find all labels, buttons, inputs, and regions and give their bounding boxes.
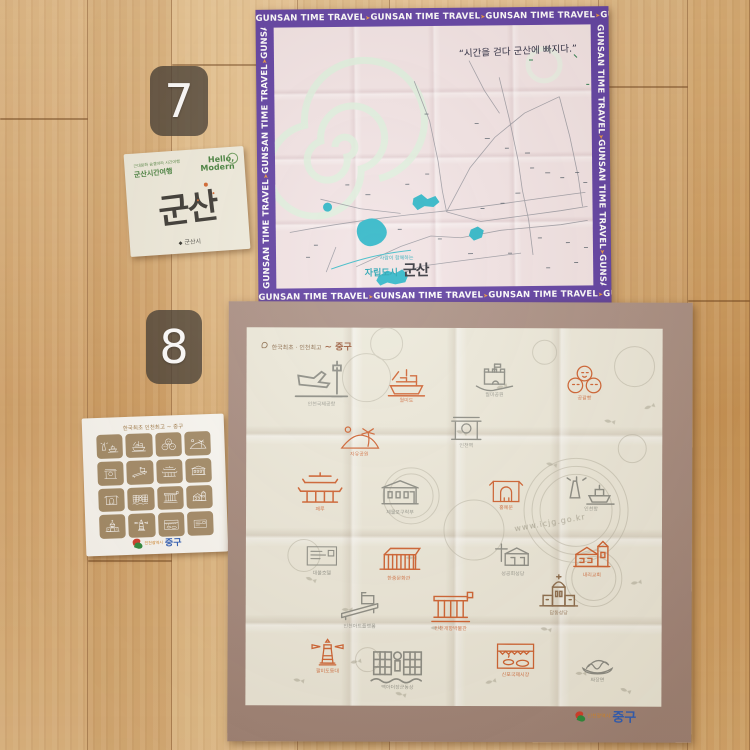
plane-separator-icon: ➤: [263, 174, 270, 179]
landmark-lighthouse: 팔미도등대: [305, 637, 349, 674]
statue-icon: [367, 642, 427, 685]
junggu-emblem-icon: [132, 538, 142, 548]
ink-dot: [212, 192, 214, 194]
church-icon: [568, 538, 616, 572]
city-calligraphy: 군산: [403, 261, 429, 279]
border-text: GUNSAN TIME TRAVEL: [596, 139, 607, 249]
border-text: GUNSAN TIME TRAVEL: [370, 12, 480, 23]
junggu-emblem-icon: [575, 711, 585, 721]
fish-silhouette-icon: [644, 403, 656, 411]
header-small-text: 한국최초 · 인천최고: [272, 342, 322, 351]
number-badge-8: 8: [146, 310, 202, 384]
landmark-gate: 인천역: [444, 412, 488, 449]
junggu-logo: 인천광역시 중구: [575, 706, 636, 725]
border-text: GUNSAN TIME TRAVEL: [600, 9, 608, 20]
border-text: GUNSAN TIME TRAVEL: [259, 28, 270, 59]
gate-icon: [444, 412, 488, 443]
landmark-label: 한중문화관: [374, 577, 424, 582]
modern-icon: [374, 540, 424, 576]
border-text: GUNSAN TIME TRAVEL: [485, 10, 595, 21]
landmark-columns: 인천개항박물관: [426, 590, 476, 632]
landmark-cathedral: 답동성당: [534, 574, 584, 616]
landmark-ship: 월미도: [382, 364, 430, 404]
landmark-hill: 자유공원: [338, 422, 380, 458]
plank-joint: [0, 118, 88, 120]
landmark-harbor: 인천항: [566, 470, 616, 512]
envelope-junggu: 한국최초 인천최고 ~ 중구 인천광역시 중구: [82, 414, 229, 557]
border-text: GUNSAN TIME TRAVEL: [260, 64, 271, 174]
border-text: GUNSAN TIME TRAVEL: [488, 289, 598, 300]
landmark-paifang: 패루: [294, 469, 346, 512]
tile-market-icon: [157, 512, 184, 537]
ship-icon: [382, 364, 430, 398]
landmark-label: 제물포구락부: [376, 511, 424, 516]
envelope-gunsan: 근대문화 숨결따라 시간여행 군산시간여행 Hello, Modern 군산 군…: [124, 146, 251, 257]
landmark-label: 대불호텔: [300, 571, 344, 576]
slogan-text: 자립도시: [365, 268, 398, 278]
landmark-label: 인천아트플랫폼: [336, 625, 384, 630]
landmark-label: 공갈빵: [562, 396, 606, 401]
landmark-label: 팔미도등대: [305, 669, 349, 674]
border-text: GUNSAN TIME TRAVEL: [603, 288, 611, 299]
noodles-icon: [575, 646, 619, 677]
harbor-icon: [566, 470, 616, 506]
leaf-stamp-icon: [227, 152, 239, 164]
border-text: GUNSAN TIME TRAVEL: [373, 290, 483, 301]
landmark-fort: 월미공원: [470, 358, 518, 398]
tile-church-icon: [186, 485, 213, 510]
gunsan-map-cloth: “시간을 걷다 군산에 빠지다.” 사람이 함께하는 자립도시 군산: [274, 24, 594, 288]
border-text: GUNSAN TIME TRAVEL: [261, 179, 272, 289]
buns-icon: [562, 364, 606, 395]
number-badge-7: 7: [150, 66, 208, 136]
tile-harbor-icon: [96, 434, 123, 459]
landmark-label: 신포국제시장: [491, 673, 539, 678]
airport-icon: [290, 357, 352, 401]
landmark-buns: 공갈빵: [562, 364, 606, 401]
landmark-modern: 한중문화관: [374, 540, 424, 582]
paifang-icon: [294, 469, 346, 506]
border-text: GUNSAN TIME TRAVEL: [595, 24, 606, 134]
incheon-city-text: 인천광역시: [587, 712, 610, 719]
plane-separator-icon: ➤: [261, 59, 268, 64]
landmark-label: 홍예문: [484, 506, 528, 511]
plank-joint: [600, 86, 688, 88]
tile-columns-icon: [157, 486, 184, 511]
columns-icon: [426, 590, 476, 626]
landmark-slope: 인천아트플랫폼: [336, 590, 384, 630]
incheon-city-text: 인천광역시: [144, 539, 163, 546]
fish-silhouette-icon: [485, 678, 497, 685]
landmark-label: 인천역: [444, 444, 488, 449]
junggu-text: 중구: [165, 535, 182, 549]
handkerchief-gunsan-map: GUNSAN TIME TRAVEL➤GUNSAN TIME TRAVEL➤GU…: [255, 6, 611, 307]
junggu-map-cloth: 한국최초 · 인천최고 ~ 중구 www.icjg.go.kr 인천국제공항월미…: [245, 327, 662, 706]
fish-silhouette-icon: [540, 626, 551, 632]
landmark-church: 내리교회: [568, 538, 616, 578]
landmark-noodles: 짜장면: [575, 646, 619, 683]
border-text: GUNSAN TIME TRAVEL: [255, 13, 365, 24]
landmark-label: 맥아더장군동상: [367, 686, 427, 691]
tile-clubhouse-icon: [185, 458, 212, 483]
tile-buns-icon: [155, 432, 182, 457]
churchcross-icon: [490, 538, 536, 571]
landmark-label: 인천국제공항: [290, 402, 352, 407]
envelope-header: 한국최초 인천최고 ~ 중구: [123, 422, 184, 432]
fort-icon: [470, 358, 518, 392]
plank-joint: [88, 560, 172, 562]
fish-silhouette-icon: [620, 686, 632, 694]
landmark-arch: 홍예문: [484, 474, 528, 511]
landmark-label: 성공회성당: [490, 572, 536, 577]
fish-silhouette-icon: [305, 575, 317, 583]
fish-silhouette-icon: [395, 691, 407, 698]
slope-icon: [336, 590, 384, 624]
tile-ship-icon: [125, 433, 152, 458]
junggu-logo: 인천광역시 중구: [132, 535, 181, 550]
city-slogan: 사람이 함께하는 자립도시 군산: [365, 256, 429, 280]
handkerchief-junggu-map: 한국최초 · 인천최고 ~ 중구 www.icjg.go.kr 인천국제공항월미…: [227, 301, 693, 743]
landmark-market: 신포국제시장: [491, 638, 539, 678]
landmark-label: 자유공원: [338, 453, 380, 458]
fish-silhouette-icon: [293, 677, 304, 683]
gunsan-calligraphy: 군산: [155, 178, 219, 234]
tile-lighthouse-icon: [128, 513, 155, 538]
landmark-churchcross: 성공회성당: [490, 538, 536, 577]
plank-joint: [688, 300, 750, 302]
tile-cathedral-icon: [99, 514, 126, 539]
tile-hill-icon: [184, 431, 211, 456]
landmark-label: 인천항: [566, 507, 616, 512]
fish-silhouette-icon: [604, 418, 615, 424]
landmark-label: 패루: [294, 507, 346, 512]
landmark-icon-grid: [96, 431, 214, 539]
landmark-clubhouse: 제물포구락부: [376, 476, 424, 516]
photo-of-souvenir-maps: GUNSAN TIME TRAVEL➤GUNSAN TIME TRAVEL➤GU…: [0, 0, 750, 750]
landmark-hotelbox: 대불호텔: [300, 539, 344, 576]
landmark-label: 월미도: [382, 399, 430, 404]
hotelbox-icon: [300, 539, 344, 570]
landmark-label: 답동성당: [534, 611, 584, 616]
hill-icon: [338, 422, 380, 452]
tile-arch-icon: [98, 488, 125, 513]
landmark-statue: 맥아더장군동상: [367, 642, 427, 691]
border-text: GUNSAN TIME TRAVEL: [597, 254, 608, 285]
tile-slope-icon: [126, 460, 153, 485]
publisher-gunsan-city: 군산시: [178, 236, 201, 247]
arch-icon: [484, 474, 528, 505]
junggu-text: 중구: [612, 707, 636, 726]
clubhouse-icon: [376, 476, 424, 510]
landmark-label: 짜장면: [575, 678, 619, 683]
tile-statue-icon: [127, 487, 154, 512]
fish-silhouette-icon: [630, 580, 641, 586]
landmark-label: 월미공원: [470, 393, 518, 398]
tile-gate-icon: [97, 461, 124, 486]
tile-paifang-icon: [156, 459, 183, 484]
border-text-right: GUNSAN TIME TRAVEL➤GUNSAN TIME TRAVEL➤GU…: [591, 24, 612, 285]
floor-plank: [688, 0, 750, 750]
gunsan-hand-drawn-map: [274, 24, 594, 288]
landmark-label: 인천개항박물관: [426, 627, 476, 632]
cloth-header: 한국최초 · 인천최고 ~ 중구: [261, 339, 352, 352]
floor-plank: [0, 0, 88, 750]
lighthouse-icon: [305, 637, 349, 668]
hand-stamp-icon: [261, 341, 269, 349]
landmark-airport: 인천국제공항: [290, 357, 352, 407]
tile-hotelbox-icon: [187, 511, 214, 536]
header-calligraphy: ~ 중구: [324, 340, 351, 353]
market-icon: [491, 638, 539, 672]
cathedral-icon: [534, 574, 584, 610]
ink-dot: [197, 199, 199, 201]
